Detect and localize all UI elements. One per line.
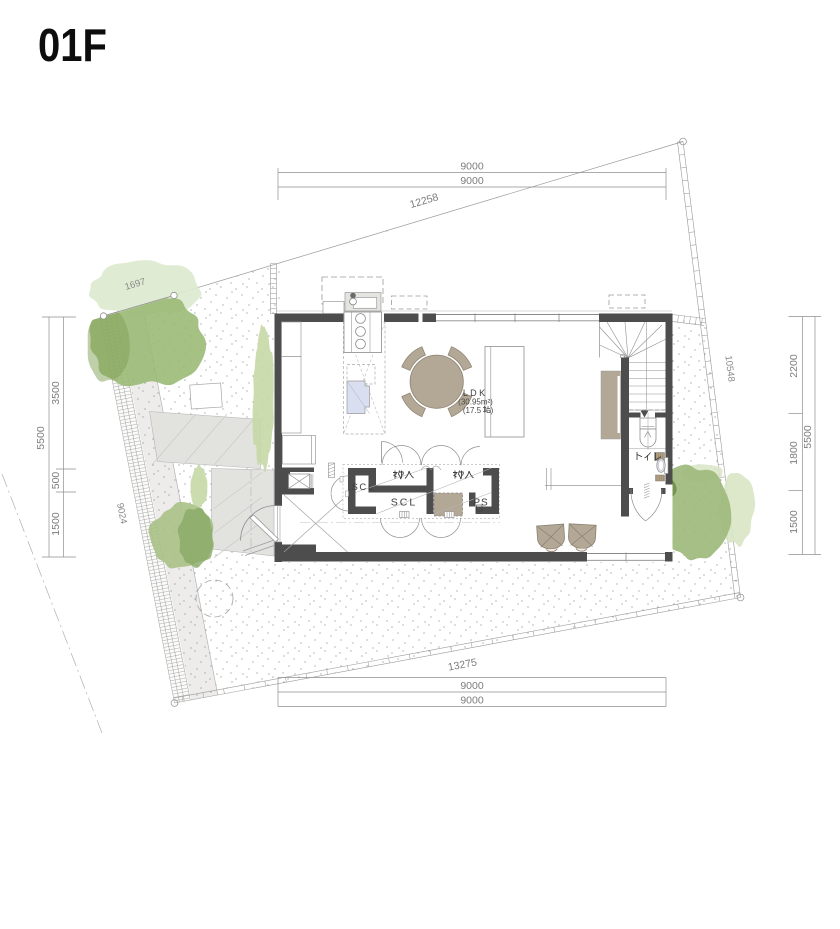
svg-text:1500: 1500 [50, 512, 62, 536]
svg-text:3500: 3500 [50, 381, 62, 405]
svg-text:12258: 12258 [408, 191, 440, 211]
svg-text:9024: 9024 [114, 502, 129, 525]
svg-text:9000: 9000 [460, 161, 484, 173]
svg-text:5500: 5500 [802, 425, 814, 449]
svg-text:9000: 9000 [460, 695, 484, 707]
svg-text:5500: 5500 [35, 426, 47, 450]
svg-text:01F: 01F [38, 20, 107, 71]
svg-text:500: 500 [50, 472, 62, 490]
svg-text:1800: 1800 [788, 441, 800, 465]
svg-text:10548: 10548 [722, 355, 736, 383]
svg-text:9000: 9000 [460, 175, 484, 187]
svg-text:9000: 9000 [460, 680, 484, 692]
svg-text:13275: 13275 [447, 656, 478, 673]
svg-text:): ) [491, 406, 494, 415]
svg-text:PS: PS [473, 498, 488, 509]
svg-text:L D K: L D K [463, 388, 485, 398]
svg-text:2200: 2200 [788, 354, 800, 378]
svg-text:SCL: SCL [352, 482, 375, 493]
svg-text:(17.5: (17.5 [463, 406, 482, 415]
svg-text:SCL: SCL [391, 497, 417, 509]
svg-text:1500: 1500 [788, 510, 800, 534]
